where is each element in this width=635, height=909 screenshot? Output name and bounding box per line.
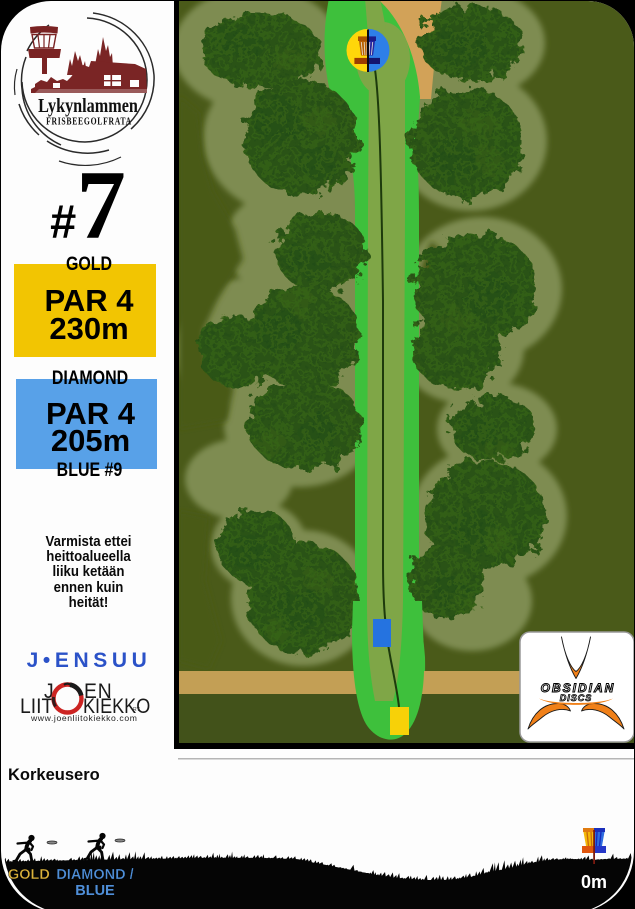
svg-text:BLUE: BLUE [75,883,115,899]
svg-text:DISCS: DISCS [560,693,593,703]
svg-text:DIAMOND /: DIAMOND / [56,867,133,883]
svg-text:Lykynlammen: Lykynlammen [38,94,138,116]
svg-text:FRISBEEGOLFRATA: FRISBEEGOLFRATA [46,116,132,128]
svg-text:Korkeusero: Korkeusero [8,766,100,784]
svg-text:0m: 0m [581,872,607,892]
svg-text:GOLD: GOLD [8,867,50,883]
